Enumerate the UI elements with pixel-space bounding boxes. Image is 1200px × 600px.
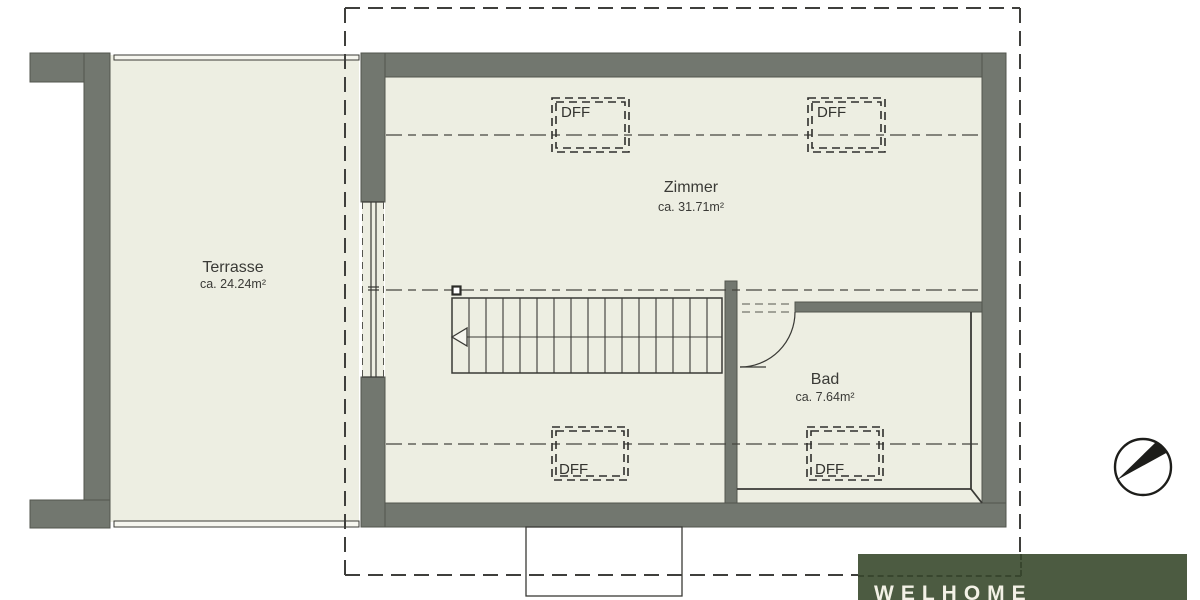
terrace-top-edge: [114, 55, 359, 60]
north-arrow-icon: [1115, 439, 1171, 495]
welhome-logo: WELHOME: [858, 554, 1187, 600]
skylight-label-top-left: DFF: [561, 104, 590, 121]
bad-label: Bad: [811, 371, 839, 388]
terrace-wall-bottom-stub: [30, 500, 110, 528]
wall-left-lower: [361, 377, 385, 527]
boundary-overlay-vertical: [1020, 554, 1022, 576]
stairs-outline: [452, 298, 722, 373]
skylight-label-bottom-left: DFF: [559, 461, 588, 478]
stairs: [452, 287, 722, 374]
skylight-label-bottom-right: DFF: [815, 461, 844, 478]
wall-partition-bad: [725, 281, 737, 503]
floor-plan-drawing: Terrasse ca. 24.24m² Zimmer ca. 31.71m² …: [0, 0, 1200, 600]
terrace-wall-left: [84, 53, 110, 528]
terrace-window: [362, 202, 384, 377]
wall-right: [982, 53, 1006, 527]
zimmer-label: Zimmer: [664, 179, 719, 196]
stair-start-marker: [453, 287, 461, 295]
terrace-area: ca. 24.24m²: [200, 277, 266, 291]
zimmer-area: ca. 31.71m²: [658, 200, 724, 214]
boundary-overlay-horizontal: [858, 575, 1021, 577]
terrace-label: Terrasse: [202, 259, 263, 276]
wall-bottom: [361, 503, 1006, 527]
dormer-outline: [526, 527, 682, 596]
logo-text: WELHOME: [874, 582, 1033, 600]
wall-bad-top: [795, 302, 982, 312]
wall-left-upper: [361, 53, 385, 202]
floor-plan-page: Terrasse ca. 24.24m² Zimmer ca. 31.71m² …: [0, 0, 1200, 600]
bad-area: ca. 7.64m²: [795, 390, 854, 404]
terrace-bottom-edge: [114, 521, 359, 527]
wall-top: [361, 53, 1006, 77]
skylight-label-top-right: DFF: [817, 104, 846, 121]
